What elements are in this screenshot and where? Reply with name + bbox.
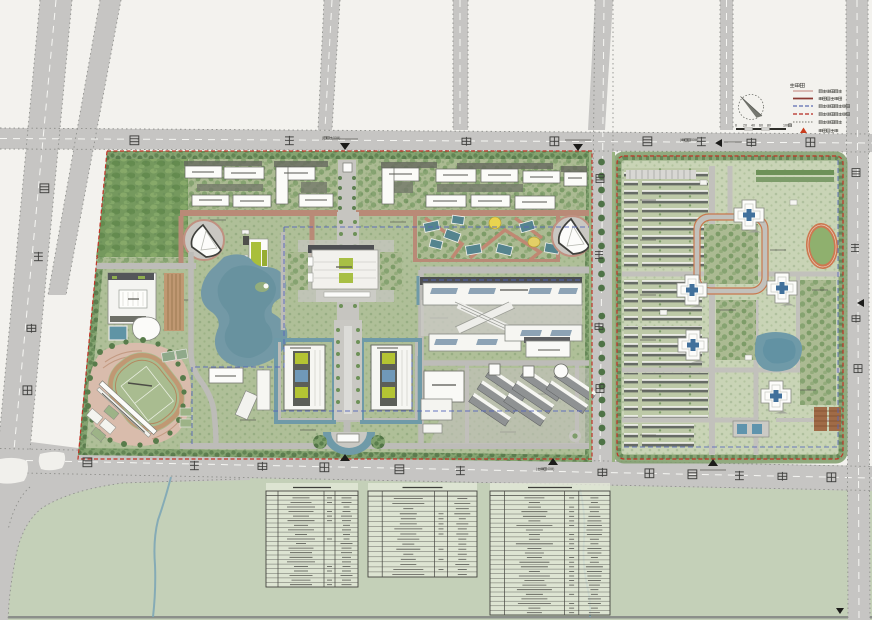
svg-text:0: 0	[735, 124, 737, 128]
svg-text:40M): 40M)	[547, 467, 554, 471]
svg-text:80: 80	[767, 124, 771, 128]
svg-text:20: 20	[743, 124, 747, 128]
svg-text:100: 100	[783, 124, 789, 128]
svg-text:60: 60	[759, 124, 763, 128]
svg-text:50M): 50M)	[333, 136, 340, 140]
svg-text:40: 40	[751, 124, 755, 128]
